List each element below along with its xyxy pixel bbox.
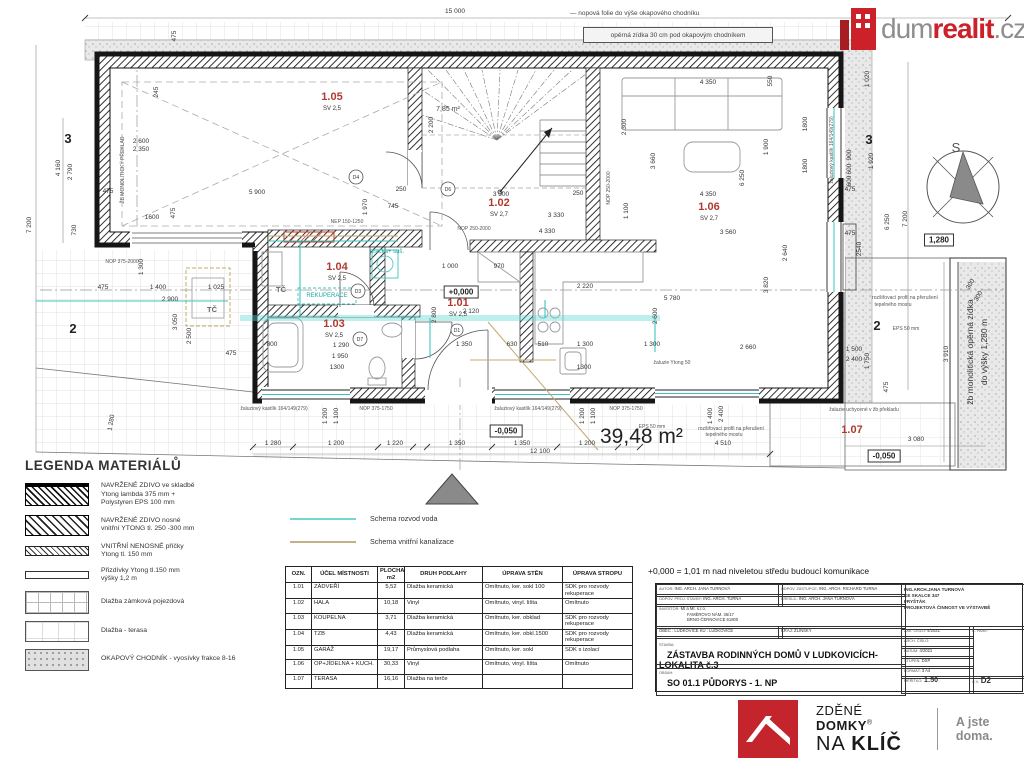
- plan-annotation: 600: [846, 163, 853, 174]
- plan-annotation: 5 780: [664, 295, 681, 302]
- table-cell: [563, 674, 633, 689]
- legend-swatch: [25, 483, 89, 506]
- plan-annotation: 475: [883, 381, 890, 392]
- plan-annotation: 1 200: [322, 407, 329, 424]
- tb-pare: Č. PARÉ:: [969, 626, 1024, 679]
- table-cell: SDK pro rozvody rekuperace: [563, 629, 633, 645]
- plan-annotation: 475: [171, 30, 178, 41]
- plan-annotation: 550: [767, 75, 774, 86]
- legend-swatch: [25, 621, 89, 642]
- table-row: 1.06OP+JÍDELNA + KUCH.30,33VinylOmítnuto…: [286, 660, 633, 675]
- dumrealit-building-icon: [840, 8, 876, 50]
- plan-annotation: 2 500: [186, 327, 193, 344]
- plan-annotation: 475: [170, 207, 177, 218]
- table-cell: 1.04: [286, 629, 312, 645]
- plan-annotation: žb monolitická opěrná zídka: [965, 299, 975, 405]
- plan-annotation: D3: [355, 289, 362, 295]
- room-height: SV 2,5: [323, 106, 342, 112]
- legend-swatch: [25, 649, 89, 671]
- plan-annotation: 1 200: [579, 407, 586, 424]
- plan-annotation: 475: [845, 186, 856, 193]
- legend-item-label: VNITŘNÍ NENOSNÉ příčkyYtong tl. 150 mm: [101, 543, 184, 560]
- plan-annotation: TČ: [276, 285, 287, 294]
- legend-item-label: OKAPOVÝ CHODNÍK - vyosívky frakce 8-16: [101, 655, 235, 664]
- plan-annotation: žaluziový kastlík 164/149(279): [240, 406, 308, 412]
- logo-tagline: A jste doma.: [956, 715, 1024, 743]
- table-cell: 5,52: [378, 583, 405, 599]
- plan-annotation: 2540: [856, 241, 863, 256]
- zdene-domky-logo: ZDĚNÉ DOMKY® NA KLÍČ A jste doma.: [738, 700, 1024, 758]
- plan-annotation: REKUPERACE: [306, 293, 347, 299]
- plan-annotation: 2 600: [133, 138, 150, 145]
- plan-annotation: 4 350: [700, 191, 717, 198]
- table-cell: 10,18: [378, 599, 405, 614]
- room-number: 1.02: [488, 197, 509, 209]
- plan-annotation: 730: [71, 224, 78, 235]
- legend-item: VNITŘNÍ NENOSNÉ příčkyYtong tl. 150 mm: [25, 543, 280, 560]
- legend-swatch: [25, 546, 89, 556]
- table-header: PLOCHA m2: [378, 567, 405, 583]
- table-cell: 3,71: [378, 613, 405, 629]
- table-header: DRUH PODLAHY: [405, 567, 483, 583]
- schema-line-sample: [290, 518, 356, 520]
- legend-item-label: NAVRŽENÉ ZDIVO nosnévnitřní YTONG tl. 25…: [101, 517, 194, 534]
- plan-annotation: 2 200: [428, 116, 435, 133]
- legend-item-label: NAVRŽENÉ ZDIVO ve skladběYtong lambda 37…: [101, 482, 195, 508]
- table-row: 1.03KOUPELNA3,71Dlažba keramickáOmítnuto…: [286, 613, 633, 629]
- materials-legend: LEGENDA MATERIÁLŮ NAVRŽENÉ ZDIVO ve skla…: [25, 458, 280, 678]
- table-cell: 19,17: [378, 645, 405, 660]
- plan-annotation: tepelného mostu: [875, 302, 912, 308]
- legend-item: Přizdívky Ytong tl.150 mmvýšky 1,2 m: [25, 567, 280, 584]
- plan-annotation: 1 020: [864, 70, 871, 87]
- compass: S: [927, 140, 999, 223]
- floor-plan-sheet: { "header": { "dim_total": "15 000", "no…: [0, 0, 1024, 776]
- title-block: AUTOR: ING. ARCH. JANA TURNOVÁ ODPOV. ZÁ…: [655, 583, 1023, 692]
- table-cell: Omítnuto, ker. sokl 100: [483, 583, 563, 599]
- table-row: 1.05GARÁŽ19,17Průmyslová podlahaOmítnuto…: [286, 645, 633, 660]
- level-marker: 1,280: [924, 234, 954, 247]
- plan-annotation: 1 920: [868, 152, 875, 169]
- plan-annotation: D6: [445, 187, 452, 193]
- schema-label: Schema vnitřní kanalizace: [370, 537, 454, 546]
- tb-cv: C.V. D2: [969, 676, 1024, 694]
- plan-annotation: 3 820: [763, 276, 770, 293]
- plan-annotation: 1 750: [864, 352, 871, 369]
- plan-annotation: 1 350: [456, 341, 473, 348]
- plan-annotation: 1 350: [514, 440, 531, 447]
- room-height: SV 2,5: [449, 312, 468, 318]
- room-number: 1.06: [698, 201, 719, 213]
- plan-annotation: 1300: [577, 364, 592, 371]
- plan-annotation: 3 910: [943, 345, 950, 362]
- room-height: SV 2,7: [490, 212, 509, 218]
- table-cell: Omítnuto: [563, 599, 633, 614]
- coffee-table: [684, 142, 740, 172]
- dumrealit-wordmark: dumrealit.cz: [881, 13, 1024, 45]
- plan-annotation: 1 220: [387, 440, 404, 447]
- table-cell: SDK pro rozvody rekuperace: [563, 613, 633, 629]
- plan-annotation: 1 970: [362, 198, 369, 215]
- roof-icon: [738, 700, 798, 758]
- table-row: 1.01ZÁDVEŘÍ5,52Dlažba keramickáOmítnuto,…: [286, 583, 633, 599]
- table-cell: 4,43: [378, 629, 405, 645]
- table-cell: KOUPELNA: [312, 613, 378, 629]
- plan-annotation: 3: [64, 131, 71, 146]
- plan-annotation: 1600: [145, 214, 160, 221]
- plan-annotation: 2 790: [67, 163, 74, 180]
- plan-annotation: 4 160: [55, 159, 62, 176]
- washbasin: [382, 323, 402, 337]
- plan-annotation: 2: [69, 321, 76, 336]
- plan-annotation: 1 100: [333, 407, 340, 424]
- plan-annotation: 1 025: [208, 284, 225, 291]
- plan-annotation: 6 250: [739, 169, 746, 186]
- plan-annotation: 2 400: [846, 356, 863, 363]
- plan-annotation: 12 100: [530, 448, 550, 455]
- dumrealit-logo: dumrealit.cz: [840, 8, 1024, 50]
- table-cell: [483, 674, 563, 689]
- logo-divider: [937, 708, 938, 750]
- plan-annotation: 1 200: [579, 440, 596, 447]
- legend-swatch: [25, 515, 89, 536]
- plan-annotation: 7 200: [26, 216, 33, 233]
- room-number: 1.07: [841, 424, 862, 436]
- compass-letter: S: [952, 140, 961, 155]
- plan-annotation: 475: [226, 350, 237, 357]
- legend-item-label: Dlažba - terasa: [101, 627, 147, 636]
- plan-annotation: žaluziový kastlík 164/149(279): [494, 406, 562, 412]
- plan-annotation: NOP 375-1750: [359, 406, 392, 412]
- plan-annotation: do výšky 1,280 m: [979, 319, 989, 385]
- tb-company: ING.ARCH.JANA TURNOVÁKE SKALCE 347FRYŠTÁ…: [901, 584, 1024, 630]
- plan-annotation: EPS 50 mm: [893, 326, 920, 332]
- table-cell: Omítnuto, vinyl. lišta: [483, 660, 563, 675]
- plan-annotation: 3 050: [172, 313, 179, 330]
- table-cell: Dlažba keramická: [405, 629, 483, 645]
- table-cell: OP+JÍDELNA + KUCH.: [312, 660, 378, 675]
- table-cell: TZB: [312, 629, 378, 645]
- plan-annotation: 1 400: [150, 284, 167, 291]
- plan-annotation: TČ: [207, 305, 218, 314]
- legend-item: NAVRŽENÉ ZDIVO nosnévnitřní YTONG tl. 25…: [25, 515, 280, 536]
- table-cell: Dlažba keramická: [405, 613, 483, 629]
- plan-annotation: ŽB MONOLITICKÝ PŘEKLAD: [118, 136, 126, 203]
- plan-annotation: pračka+ suš.: [370, 249, 405, 255]
- plan-annotation: 1 290: [333, 342, 350, 349]
- plan-annotation: 2 400: [718, 405, 725, 422]
- toilet: [369, 357, 385, 379]
- plan-annotation: D4: [353, 175, 360, 181]
- plan-annotation: žaluzie Ytong 50: [654, 360, 691, 366]
- plan-annotation: 4 350: [700, 79, 717, 86]
- plan-annotation: 1 300: [644, 341, 661, 348]
- schema-legend-item: Schema vnitřní kanalizace: [290, 537, 454, 546]
- table-header: ÚPRAVA STROPU: [563, 567, 633, 583]
- plan-annotation: 2 660: [740, 344, 757, 351]
- level-marker: -0,050: [490, 425, 523, 438]
- table-cell: ZÁDVEŘÍ: [312, 583, 378, 599]
- plan-annotation: 1 300: [577, 341, 594, 348]
- plan-annotation: 1 100: [590, 407, 597, 424]
- staircase: [422, 70, 586, 194]
- table-cell: Omítnuto, ker. sokl: [483, 645, 563, 660]
- plan-annotation: 3 560: [720, 229, 737, 236]
- plan-annotation: 970: [494, 263, 505, 270]
- table-cell: HALA: [312, 599, 378, 614]
- plan-annotation: 630: [507, 341, 518, 348]
- plan-annotation: 245: [153, 86, 160, 97]
- legend-title: LEGENDA MATERIÁLŮ: [25, 458, 280, 473]
- table-cell: 1.01: [286, 583, 312, 599]
- schema-label: Schema rozvod voda: [370, 514, 438, 523]
- plan-annotation: NOP 250-2000: [606, 171, 612, 204]
- table-cell: GARÁŽ: [312, 645, 378, 660]
- entrance-marker: [426, 474, 478, 504]
- table-cell: 1.07: [286, 674, 312, 689]
- plan-annotation: 6 250: [884, 213, 891, 230]
- plan-annotation: 1 950: [332, 353, 349, 360]
- plan-annotation: 2 300: [621, 118, 628, 135]
- plan-annotation: NOP 375-1750: [609, 406, 642, 412]
- table-header: ÚPRAVA STĚN: [483, 567, 563, 583]
- plan-annotation: 7 200: [902, 210, 909, 227]
- legend-swatch: [25, 571, 89, 579]
- legend-item: OKAPOVÝ CHODNÍK - vyosívky frakce 8-16: [25, 649, 280, 671]
- legend-item: NAVRŽENÉ ZDIVO ve skladběYtong lambda 37…: [25, 482, 280, 508]
- table-row: 1.02HALA10,18VinylOmítnuto, vinyl. lišta…: [286, 599, 633, 614]
- plan-annotation: 475: [845, 230, 856, 237]
- note-operna-zidka: opěrná zídka 30 cm pod okapovým chodníke…: [583, 27, 773, 43]
- plan-annotation: 1 500: [846, 346, 863, 353]
- table-cell: 1.05: [286, 645, 312, 660]
- table-cell: Omítnuto, ker. obkl.1500: [483, 629, 563, 645]
- plan-annotation: 800: [267, 341, 278, 348]
- table-cell: Dlažba keramická: [405, 583, 483, 599]
- plan-annotation: 3 080: [908, 436, 925, 443]
- plan-annotation: 2 350: [133, 146, 150, 153]
- plan-annotation: 15 000: [445, 8, 465, 15]
- plan-annotation: 7,85 m²: [436, 106, 460, 113]
- plan-annotation: 1 900: [763, 138, 770, 155]
- plan-annotation: 3: [865, 132, 872, 147]
- table-cell: 1.03: [286, 613, 312, 629]
- plan-annotation: rozšiřovací profil na přerušení: [872, 295, 938, 301]
- plan-annotation: 3 330: [548, 212, 565, 219]
- table-cell: SDK s izolací: [563, 645, 633, 660]
- room-number: 1.01: [447, 297, 468, 309]
- level-marker: +0,000: [444, 286, 479, 299]
- plan-annotation: D7: [357, 337, 364, 343]
- room-height: SV 2,7: [700, 216, 719, 222]
- tb-meritko: MĚŘÍTKO: 1:50: [901, 676, 974, 694]
- plan-annotation: 5 900: [249, 189, 266, 196]
- table-cell: Omítnuto, vinyl. lišta: [483, 599, 563, 614]
- plan-annotation: žaluzie uchycené v žb překladu: [829, 407, 899, 413]
- datum-reference-note: +0,000 = 1,01 m nad niveletou středu bud…: [648, 566, 869, 576]
- zdene-domky-wordmark: ZDĚNÉ DOMKY® NA KLÍČ: [816, 703, 915, 756]
- table-header: ÚČEL MÍSTNOSTI: [312, 567, 378, 583]
- tb-obsah: OBSAH:SO 01.1 PŮDORYS - 1. NP: [656, 664, 906, 696]
- plan-annotation: 1 000: [442, 263, 459, 270]
- legend-swatch: [25, 591, 89, 614]
- compass-needle: [950, 152, 983, 204]
- table-cell: Průmyslová podlaha: [405, 645, 483, 660]
- plan-annotation: 250: [396, 186, 407, 193]
- level-marker: -0,050: [868, 450, 901, 463]
- plan-annotation: 2 800: [431, 306, 438, 323]
- plan-annotation: 900: [846, 149, 853, 160]
- plan-annotation: žaluziový kastlík 164/149(279): [829, 116, 835, 184]
- plan-annotation: 4 510: [715, 440, 732, 447]
- plan-annotation: NOP 375-2000: [105, 259, 138, 265]
- legend-item-label: Přizdívky Ytong tl.150 mmvýšky 1,2 m: [101, 567, 180, 584]
- table-cell: 16,16: [378, 674, 405, 689]
- note-nopova-folie: — nopová folie do výše okapového chodník…: [570, 10, 699, 17]
- room-number: 1.03: [323, 318, 344, 330]
- plan-annotation: 2 600: [652, 307, 659, 324]
- plan-annotation: 1300: [330, 364, 345, 371]
- schema-legend-item: Schema rozvod voda: [290, 514, 454, 523]
- plan-annotation: NOP 250-2000: [457, 226, 490, 232]
- schema-legend: Schema rozvod vodaSchema vnitřní kanaliz…: [290, 514, 454, 560]
- table-cell: Vinyl: [405, 660, 483, 675]
- table-cell: Dlažba na terče: [405, 674, 483, 689]
- plan-annotation: 2: [873, 318, 880, 333]
- plan-annotation: 1 100: [623, 202, 630, 219]
- table-row: 1.04TZB4,43Dlažba keramickáOmítnuto, ker…: [286, 629, 633, 645]
- plan-annotation: 1 350: [449, 440, 466, 447]
- legend-item: Dlažba zámková pojezdová: [25, 591, 280, 614]
- plan-annotation: tepelného mostu: [706, 432, 743, 438]
- legend-item-label: Dlažba zámková pojezdová: [101, 598, 184, 607]
- plan-annotation: 600: [846, 175, 853, 186]
- room-number: 1.04: [326, 261, 348, 273]
- plan-annotation: 745: [388, 203, 399, 210]
- table-header: OZN.: [286, 567, 312, 583]
- table-cell: Omítnuto: [563, 660, 633, 675]
- plan-annotation: 1 200: [328, 440, 345, 447]
- table-cell: 1.06: [286, 660, 312, 675]
- plan-annotation: 1800: [802, 158, 809, 173]
- plan-annotation: 1 300: [138, 258, 145, 275]
- paving-driveway: [36, 250, 253, 455]
- room-number: 1.05: [321, 91, 342, 103]
- plan-annotation: 475: [98, 284, 109, 291]
- legend-item: Dlažba - terasa: [25, 621, 280, 642]
- room-height: SV 2,5: [325, 333, 344, 339]
- plan-annotation: 2 640: [782, 244, 789, 261]
- table-cell: TERASA: [312, 674, 378, 689]
- plan-annotation: 1800: [802, 116, 809, 131]
- plan-annotation: 475: [103, 188, 114, 195]
- plan-annotation: 3 660: [650, 152, 657, 169]
- table-cell: 1.02: [286, 599, 312, 614]
- room-height: SV 2,5: [328, 276, 347, 282]
- plan-annotation: 1 280: [265, 440, 282, 447]
- schema-line-sample: [290, 541, 356, 543]
- plan-annotation: D1: [454, 328, 461, 334]
- table-cell: 30,33: [378, 660, 405, 675]
- table-row: 1.07TERASA16,16Dlažba na terče: [286, 674, 633, 689]
- table-cell: Omítnuto, ker. obklad: [483, 613, 563, 629]
- plan-annotation: 510: [538, 341, 549, 348]
- area-total-label: 39,48 m²: [600, 425, 683, 449]
- table-cell: Vinyl: [405, 599, 483, 614]
- plan-annotation: 1 400: [707, 407, 714, 424]
- plan-annotation: 250: [573, 190, 584, 197]
- plan-annotation: NEP 150-1250: [331, 219, 364, 225]
- plan-annotation: 2 900: [162, 296, 179, 303]
- plan-annotation: 2 220: [577, 283, 594, 290]
- room-schedule-table: OZN.ÚČEL MÍSTNOSTIPLOCHA m2DRUH PODLAHYÚ…: [285, 566, 633, 689]
- plan-annotation: 4 330: [539, 228, 556, 235]
- table-cell: SDK pro rozvody rekuperace: [563, 583, 633, 599]
